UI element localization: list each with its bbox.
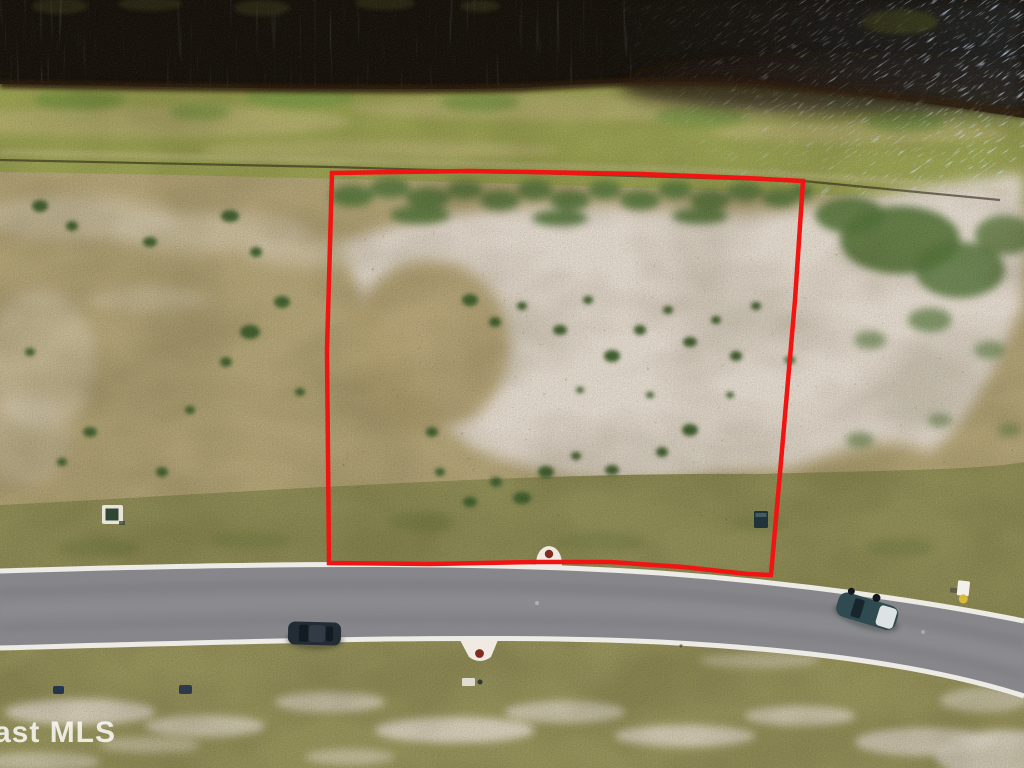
sign-face [957, 580, 971, 596]
utility-box-top [756, 513, 767, 517]
marker-top-cap [545, 550, 553, 558]
car-dark-windshield [299, 625, 308, 642]
utility-box-right [754, 511, 768, 528]
marker-bottom-cap [475, 649, 484, 658]
mls-watermark: ast MLS [0, 716, 116, 749]
blue-object [53, 686, 64, 694]
dark-speck-object [478, 680, 483, 685]
car-dark [286, 621, 345, 651]
road-light-speck-2 [921, 630, 925, 634]
road-debris-speck [679, 644, 682, 647]
aerial-photo: ast MLS [0, 0, 1024, 768]
white-card-object [462, 678, 475, 686]
blue-object-2 [179, 685, 192, 694]
utility-pad-left [102, 505, 125, 525]
aerial-photo-canvas: ast MLS [0, 0, 1024, 768]
utility-pad-lid [106, 509, 119, 521]
road-light-speck [535, 601, 539, 605]
utility-pad-valve [119, 521, 125, 525]
car-dark-roof [309, 625, 325, 642]
car-dark-rear-window [326, 626, 333, 641]
